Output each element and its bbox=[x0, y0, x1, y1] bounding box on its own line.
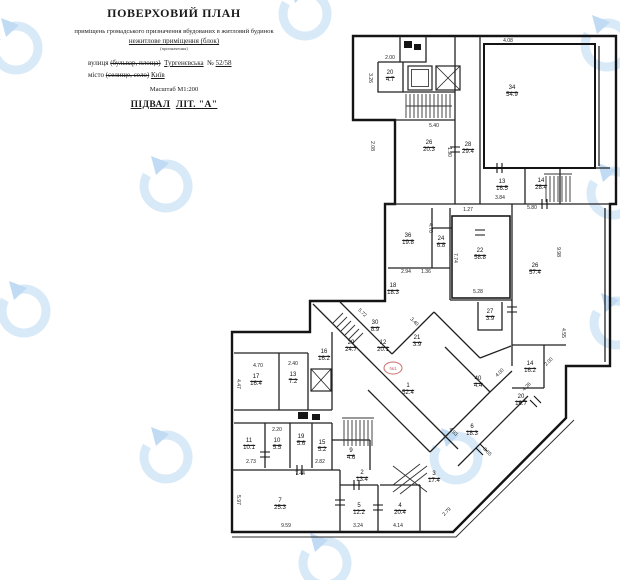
watermark-logo-icon bbox=[144, 427, 188, 479]
watermark-logo-icon bbox=[2, 281, 46, 333]
address-block: вулиця (бульвар, площа) Тургенєвська № 5… bbox=[88, 58, 348, 81]
scale-note: Масштаб М1:200 bbox=[0, 86, 348, 93]
city-label: місто bbox=[88, 71, 104, 79]
street-struck-text: (бульвар, площа) bbox=[110, 59, 160, 67]
subtitle-line-1: приміщень громадського призначення вбудо… bbox=[0, 28, 348, 35]
street-line: вулиця (бульвар, площа) Тургенєвська № 5… bbox=[88, 58, 348, 70]
city-line: місто (селище, село) Київ bbox=[88, 70, 348, 82]
city-struck-text: (селище, село) bbox=[106, 71, 150, 79]
building-number-label: № bbox=[207, 59, 214, 67]
document-header: ПОВЕРХОВИЙ ПЛАН приміщень громадського п… bbox=[0, 0, 348, 110]
watermark-logo-icon bbox=[594, 293, 620, 345]
hall-549-walls bbox=[484, 44, 595, 168]
page-title: ПОВЕРХОВИЙ ПЛАН bbox=[0, 6, 348, 21]
outer-wall-offset-line bbox=[232, 420, 574, 537]
watermark-logo-icon bbox=[144, 156, 188, 208]
street-value: Тургенєвська bbox=[164, 59, 204, 67]
street-label: вулиця bbox=[88, 59, 108, 67]
interior-walls bbox=[232, 36, 610, 532]
stamp-text: №1 bbox=[389, 366, 397, 371]
hall-588-walls bbox=[452, 216, 510, 298]
floor-label: ПІДВАЛ bbox=[131, 100, 171, 110]
red-stamp: №1 bbox=[384, 362, 402, 374]
scanned-floor-plan-page: { "document": { "title": "ПОВЕРХОВИЙ ПЛА… bbox=[0, 0, 620, 580]
elevator-shaft-x bbox=[436, 66, 460, 90]
elevator-shaft bbox=[408, 66, 432, 90]
watermark-logo-icon bbox=[585, 15, 620, 67]
elevator-shaft-x bbox=[311, 369, 331, 391]
subtitle-note: (призначення) bbox=[0, 46, 348, 51]
city-value: Київ bbox=[151, 71, 165, 79]
liter-label: ЛІТ. "А" bbox=[176, 100, 218, 110]
floor-designation: ПІДВАЛ ЛІТ. "А" bbox=[0, 100, 348, 110]
building-number-value: 52/58 bbox=[216, 59, 232, 67]
watermark-logo-icon bbox=[434, 428, 478, 480]
watermark-logo-icon bbox=[303, 533, 347, 580]
subtitle-line-2: нежитлове приміщення (блок) bbox=[0, 37, 348, 45]
door-opening-ticks bbox=[260, 147, 547, 510]
